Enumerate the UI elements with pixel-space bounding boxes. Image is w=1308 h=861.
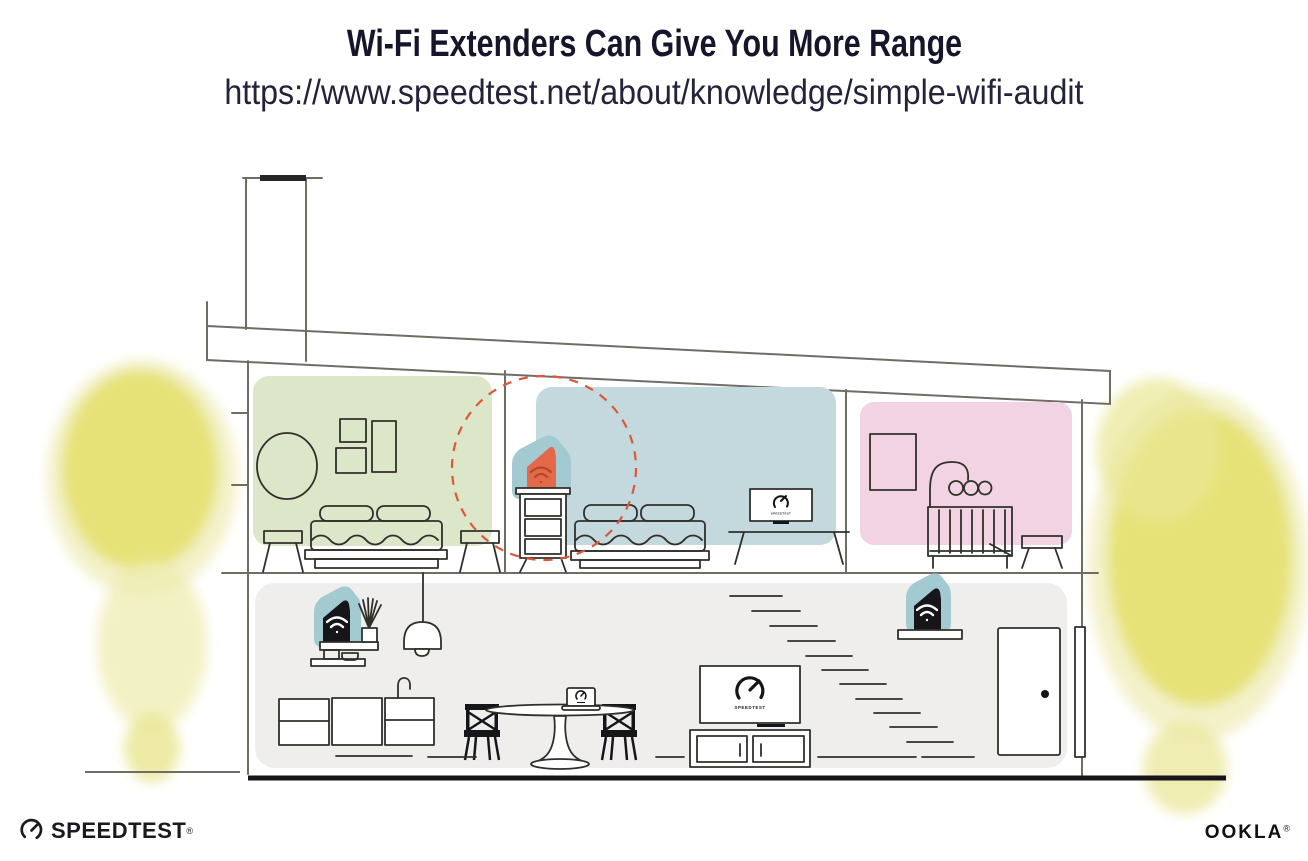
registered-mark: ® (1283, 824, 1290, 834)
wall-shelf (320, 642, 378, 650)
speedtest-logo: SPEEDTEST® (18, 817, 193, 844)
bedroom-green (253, 376, 500, 572)
media-console (690, 730, 810, 767)
source-url-text: https://www.speedtest.net/about/knowledg… (0, 74, 1308, 113)
speedtest-gauge-icon (18, 817, 45, 844)
bedroom-blue: SPEEDTEST (512, 387, 849, 572)
yellow-tree-right (1088, 378, 1308, 814)
door-jamb (1075, 627, 1085, 757)
pink-room-bg (860, 402, 1072, 545)
table-top (486, 705, 634, 716)
registered-mark: ® (186, 826, 193, 836)
tv-screen-label: SPEEDTEST (771, 512, 791, 516)
speedtest-wordmark: SPEEDTEST (51, 818, 186, 844)
dresser (516, 488, 570, 572)
header: Wi-Fi Extenders Can Give You More Range … (0, 0, 1308, 112)
ookla-wordmark: OOKLA (1205, 822, 1284, 843)
front-door (998, 628, 1060, 755)
ookla-logo: OOKLA® (1205, 822, 1290, 844)
nursery-pink (860, 402, 1072, 568)
tv-living-room: SPEEDTEST (690, 666, 810, 767)
house-cutaway-illustration: SPEEDTEST (0, 0, 1308, 861)
laptop (562, 688, 600, 710)
wall-shelf (898, 630, 962, 639)
lower-floor: SPEEDTEST (255, 573, 1085, 769)
door-knob (1041, 690, 1049, 698)
page-title: Wi-Fi Extenders Can Give You More Range (0, 24, 1308, 66)
tv-screen-label: SPEEDTEST (734, 705, 765, 710)
yellow-tree-left (47, 360, 237, 782)
